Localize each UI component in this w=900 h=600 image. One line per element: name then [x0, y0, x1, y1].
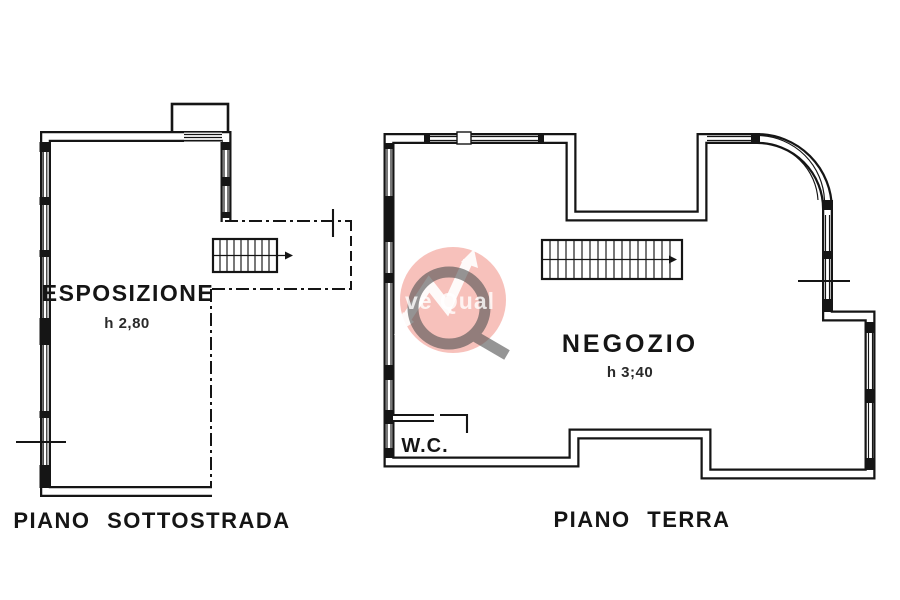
stairs-sottostrada	[213, 239, 293, 272]
room-label-negozio: NEGOZIO	[562, 330, 698, 358]
room-height-esposizione: h 2,80	[104, 315, 150, 332]
scanned-floorplan-page: ESPOSIZIONE h 2,80 PIANO SOTTOSTRADA	[0, 0, 900, 600]
room-height-negozio: h 3;40	[607, 364, 653, 381]
stair-direction-arrow	[285, 252, 293, 260]
room-label-esposizione: ESPOSIZIONE	[42, 280, 214, 306]
roof-protrusion	[172, 104, 228, 133]
window	[184, 133, 222, 142]
window	[43, 150, 228, 465]
exterior-wall	[46, 137, 227, 492]
wc-partition	[393, 415, 467, 433]
floor-plan-drawing: ESPOSIZIONE h 2,80 PIANO SOTTOSTRADA	[0, 0, 900, 600]
wc-door	[440, 415, 467, 433]
watermark-text: ve Qual	[405, 288, 495, 314]
plan-sottostrada: ESPOSIZIONE h 2,80 PIANO SOTTOSTRADA	[13, 104, 352, 533]
watermark-logo: ve Qual	[394, 247, 507, 355]
floor-label-terra: PIANO TERRA	[553, 507, 730, 532]
stairs-terra	[542, 240, 682, 279]
floor-label-sottostrada: PIANO SOTTOSTRADA	[13, 508, 290, 533]
wc-label: W.C.	[401, 435, 448, 457]
